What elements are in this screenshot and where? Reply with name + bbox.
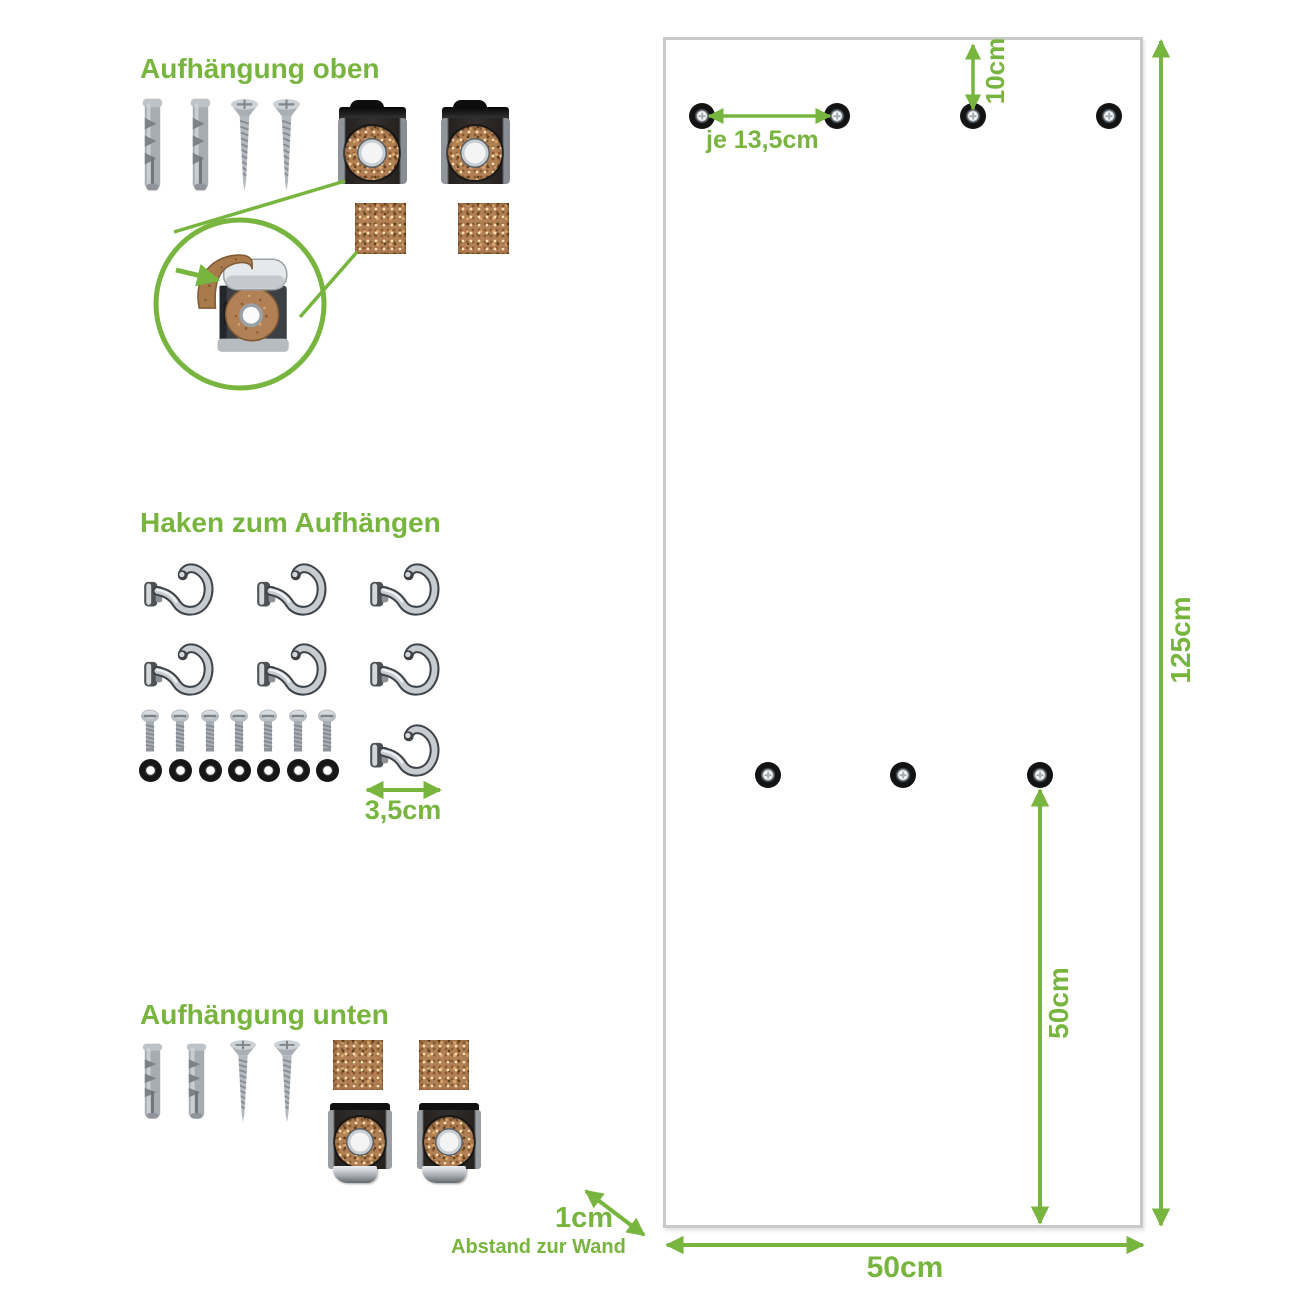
- washer-icon: [257, 759, 280, 782]
- wall-plug-icon: [138, 96, 167, 194]
- clip-detail-icon: [193, 245, 295, 359]
- mounting-hole: [890, 762, 916, 788]
- dim-label-hole-spacing: je 13,5cm: [706, 127, 819, 153]
- machine-screw-icon: [258, 708, 278, 754]
- section-title-hooks: Haken zum Aufhängen: [140, 508, 441, 537]
- cork-pad-icon: [458, 203, 509, 254]
- cork-pad-icon: [355, 203, 406, 254]
- dim-caption-wall-gap: Abstand zur Wand: [451, 1237, 626, 1258]
- mounting-clip-bottom-icon: [328, 1103, 392, 1183]
- cup-hook-icon: [362, 633, 444, 699]
- washer-icon: [287, 759, 310, 782]
- clip-lip: [333, 1166, 377, 1183]
- cup-hook-icon: [136, 633, 218, 699]
- cork-pad-icon: [333, 1040, 383, 1090]
- wall-plug-icon: [182, 1042, 211, 1121]
- dim-label-panel-width: 50cm: [845, 1252, 965, 1284]
- connector-cork-to-detail: [300, 252, 357, 317]
- dim-label-wall-gap: 1cm: [543, 1203, 613, 1233]
- cork-ring: [448, 126, 502, 180]
- countersunk-screw-icon: [271, 95, 302, 199]
- washer-icon: [199, 759, 222, 782]
- cup-hook-icon: [362, 553, 444, 619]
- machine-screw-icon: [200, 708, 220, 754]
- cork-ring: [345, 126, 399, 180]
- cup-hook-icon: [249, 553, 331, 619]
- dim-label-hook-size: 3,5cm: [353, 796, 453, 824]
- section-title-hanging-top: Aufhängung oben: [140, 54, 380, 83]
- mounting-hole: [1027, 762, 1053, 788]
- cork-pad-icon: [419, 1040, 469, 1090]
- machine-screw-icon: [170, 708, 190, 754]
- mounting-hole: [1096, 103, 1122, 129]
- countersunk-screw-icon: [229, 95, 260, 199]
- wall-plug-icon: [186, 96, 215, 194]
- clip-lip: [422, 1166, 466, 1183]
- section-title-hanging-bottom: Aufhängung unten: [140, 1000, 389, 1029]
- cork-ring: [424, 1117, 474, 1167]
- mounting-clip-top-icon: [441, 100, 510, 184]
- dim-label-lower-offset: 50cm: [1045, 953, 1073, 1053]
- mounting-hole: [755, 762, 781, 788]
- washer-icon: [316, 759, 339, 782]
- cup-hook-icon: [249, 633, 331, 699]
- cork-ring: [335, 1117, 385, 1167]
- dim-label-panel-height: 125cm: [1167, 590, 1195, 690]
- machine-screw-icon: [140, 708, 160, 754]
- washer-icon: [169, 759, 192, 782]
- countersunk-screw-icon: [272, 1038, 302, 1128]
- cup-hook-icon: [362, 714, 444, 780]
- mounting-clip-top-icon: [338, 100, 407, 184]
- cup-hook-icon: [136, 553, 218, 619]
- countersunk-screw-icon: [228, 1038, 258, 1128]
- machine-screw-icon: [229, 708, 249, 754]
- wall-plug-icon: [138, 1042, 167, 1121]
- mounting-hole: [824, 103, 850, 129]
- washer-icon: [228, 759, 251, 782]
- machine-screw-icon: [317, 708, 337, 754]
- machine-screw-icon: [288, 708, 308, 754]
- washer-icon: [139, 759, 162, 782]
- installation-diagram: Aufhängung oben Haken zum Aufhängen: [0, 0, 1300, 1300]
- mounting-clip-bottom-icon: [417, 1103, 481, 1183]
- dim-label-top-offset: 10cm: [982, 26, 1010, 116]
